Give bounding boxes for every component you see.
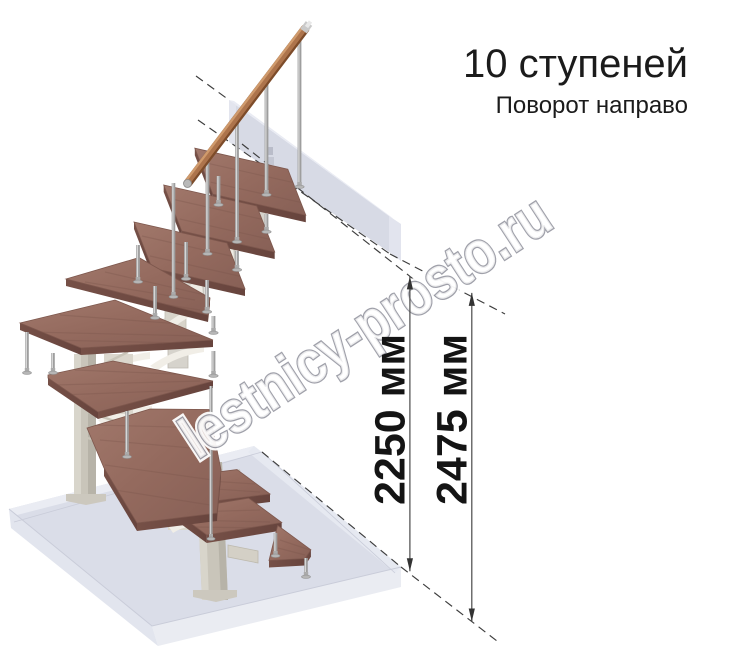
svg-text:10 ступеней: 10 ступеней: [463, 42, 688, 86]
svg-text:Поворот направо: Поворот направо: [496, 92, 688, 119]
svg-text:2250 мм: 2250 мм: [367, 334, 415, 505]
svg-text:2475 мм: 2475 мм: [429, 334, 477, 505]
